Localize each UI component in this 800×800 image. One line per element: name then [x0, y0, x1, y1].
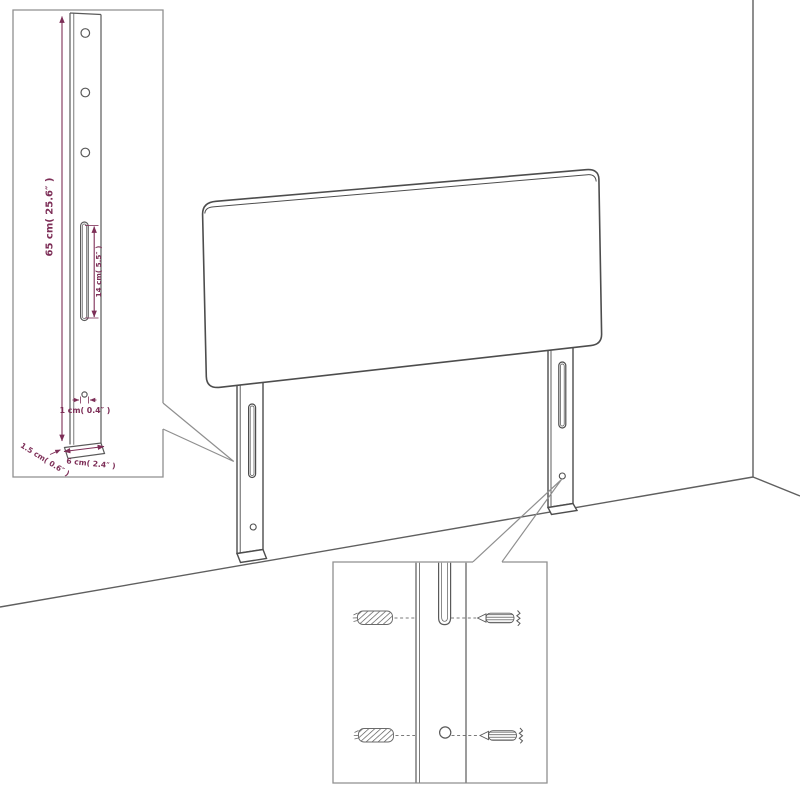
leg-hole	[250, 524, 256, 530]
leg-hole	[559, 473, 565, 479]
floor-line-right	[753, 477, 800, 496]
inset-background	[333, 562, 547, 783]
headboard-leg-left	[237, 376, 267, 563]
callout-lines	[163, 403, 562, 562]
instruction-diagram: 65 cm( 25.6″ ) 14 cm( 5.5″ ) 1 cm( 0.4″ …	[0, 0, 800, 800]
headboard-panel	[203, 170, 602, 388]
detail-inset-bracket: 65 cm( 25.6″ ) 14 cm( 5.5″ ) 1 cm( 0.4″ …	[13, 10, 163, 478]
dimension-label-hole: 1 cm( 0.4″ )	[60, 406, 111, 415]
dimension-label-height: 65 cm( 25.6″ )	[45, 178, 56, 257]
dimension-label-slot: 14 cm( 5.5″ )	[94, 246, 103, 298]
callout-lines-mounting	[473, 480, 562, 562]
leg-slot	[249, 404, 256, 478]
diagram-canvas: 65 cm( 25.6″ ) 14 cm( 5.5″ ) 1 cm( 0.4″ …	[0, 0, 800, 800]
leg-slot	[559, 362, 566, 428]
detail-inset-mounting	[333, 562, 547, 783]
callout-lines-bracket	[163, 403, 234, 462]
